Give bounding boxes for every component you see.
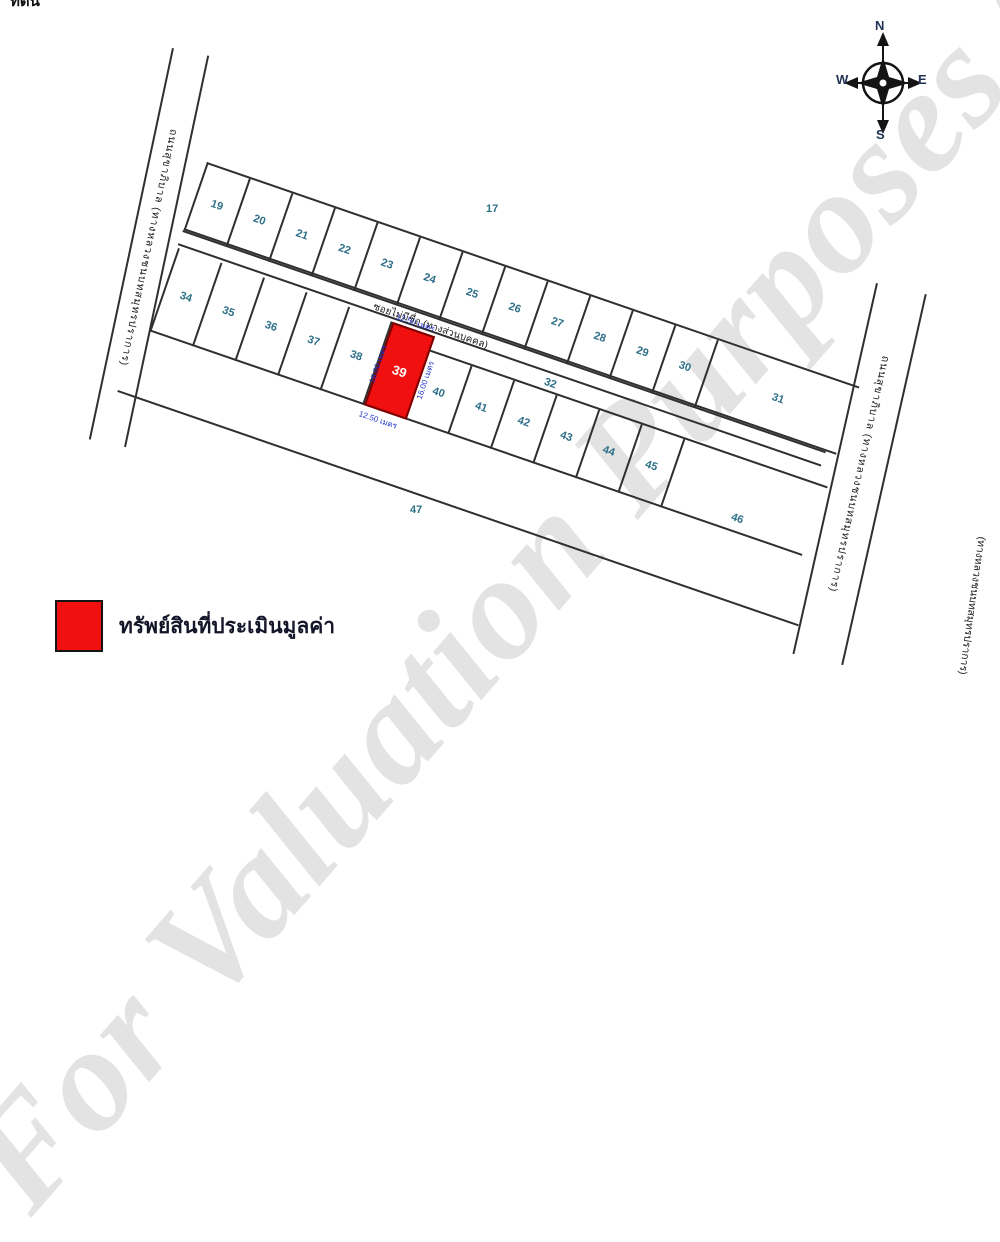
compass-north-label: N [875,18,884,33]
compass-icon [838,20,928,142]
plot-47: 47 [410,504,422,516]
legend-caption: ทรัพย์สินที่ประเมินมูลค่า [119,610,335,643]
clipped-title-text: ที่ดิน [10,0,40,13]
plot-17: 17 [486,203,498,215]
compass-rose: N S W E [838,20,928,142]
cadastral-map-page: { "header": { "clipped_title": "ที่ดิน" … [0,0,1000,656]
legend-red-swatch [55,600,103,652]
compass-east-label: E [918,72,927,87]
compass-south-label: S [876,127,885,142]
legend: ทรัพย์สินที่ประเมินมูลค่า [55,600,335,652]
right-road-label-bottom: (ทางหลวงชนบทสมุทรปราการ) [954,535,990,675]
compass-west-label: W [836,72,848,87]
